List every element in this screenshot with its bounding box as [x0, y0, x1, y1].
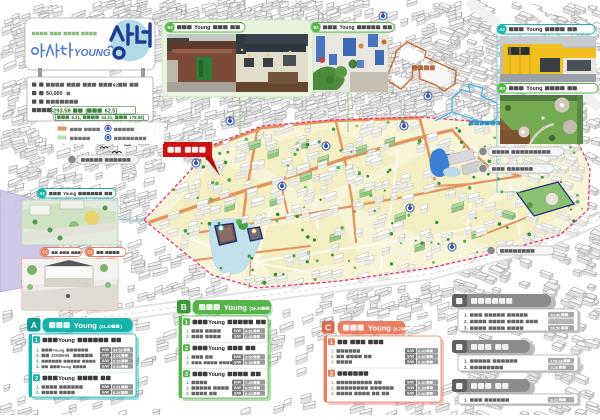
svg-text:B3: B3	[500, 86, 506, 91]
svg-text:B2: B2	[168, 25, 174, 30]
svg-text:Young: Young	[339, 25, 354, 31]
svg-text:B1: B1	[314, 25, 320, 30]
svg-text:Young: Young	[194, 25, 210, 31]
svg-text:Young: Young	[526, 27, 542, 33]
svg-text:Young: Young	[526, 86, 542, 92]
svg-text:A2: A2	[500, 27, 506, 32]
